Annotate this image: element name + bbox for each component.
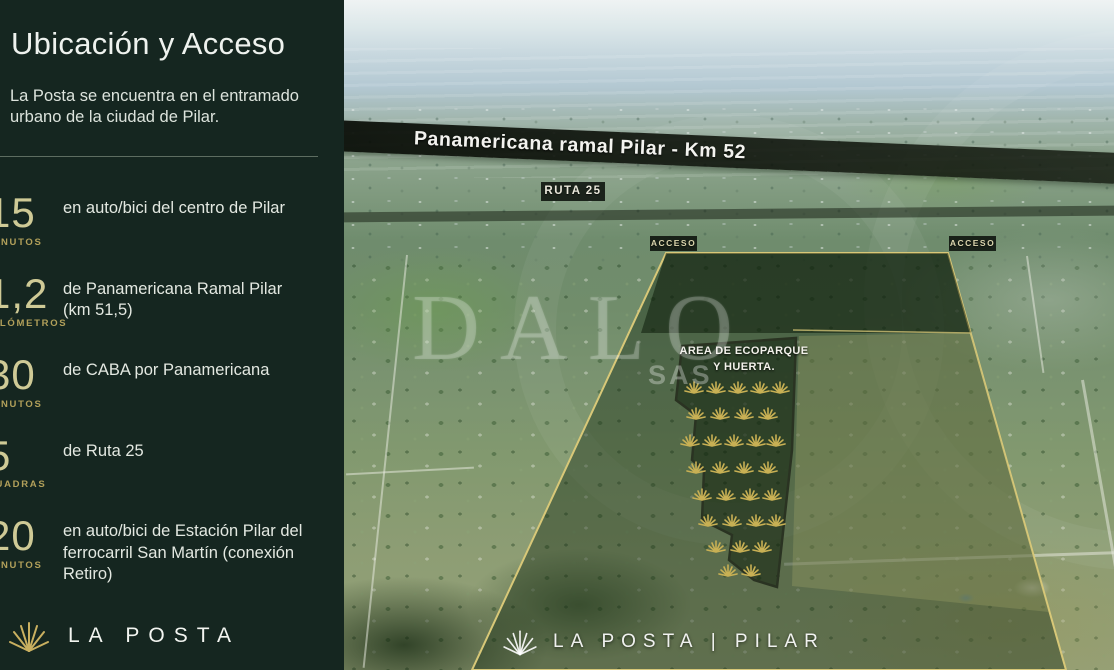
divider	[0, 156, 318, 157]
agave-icon	[8, 618, 50, 654]
location-access-slide: Ubicación y Acceso La Posta se encuentra…	[0, 0, 1114, 670]
stat-unit: CUADRAS	[0, 479, 63, 490]
stat-row-minutes-estacion: 20 MINUTOS en auto/bici de Estación Pila…	[0, 516, 344, 585]
sidebar-subtitle: La Posta se encuentra en el entramado ur…	[10, 86, 316, 129]
stat-value-block: 5 CUADRAS	[0, 436, 63, 491]
stat-description: de Panamericana Ramal Pilar (km 51,5)	[63, 274, 311, 322]
aerial-map: Panamericana ramal Pilar - Km 52 RUTA 25…	[344, 0, 1114, 670]
stat-description: en auto/bici del centro de Pilar	[63, 193, 285, 219]
stat-unit: KILÓMETROS	[0, 318, 63, 329]
stat-description: de CABA por Panamericana	[63, 355, 269, 381]
laposta-wordmark: LA POSTA	[68, 624, 240, 648]
stats-list: 15 MINUTOS en auto/bici del centro de Pi…	[0, 193, 344, 586]
map-footer-logo: LA POSTA | PILAR	[502, 627, 825, 657]
sidebar: Ubicación y Acceso La Posta se encuentra…	[0, 0, 344, 670]
stat-value: 1,2	[0, 274, 63, 314]
stat-value-block: 20 MINUTOS	[0, 516, 63, 571]
stat-unit: MINUTOS	[0, 399, 63, 410]
stat-description: en auto/bici de Estación Pilar del ferro…	[63, 516, 311, 585]
stat-unit: MINUTOS	[0, 560, 63, 571]
footer-brand-text: LA POSTA | PILAR	[553, 631, 825, 653]
stat-description: de Ruta 25	[63, 436, 144, 462]
stat-unit: MINUTOS	[0, 237, 63, 248]
stat-value-block: 15 MINUTOS	[0, 193, 63, 248]
stat-value: 20	[0, 516, 63, 556]
stat-value: 30	[0, 355, 63, 395]
page-title: Ubicación y Acceso	[11, 26, 324, 62]
laposta-logo: LA POSTA	[8, 618, 240, 654]
stat-value-block: 30 MINUTOS	[0, 355, 63, 410]
watermark-subtext: SAS	[648, 360, 713, 391]
stat-value: 5	[0, 436, 63, 476]
stat-row-minutes-caba: 30 MINUTOS de CABA por Panamericana	[0, 355, 344, 410]
stat-value-block: 1,2 KILÓMETROS	[0, 274, 63, 329]
agave-icon-white	[502, 627, 538, 657]
stat-value: 15	[0, 193, 63, 233]
stat-row-cuadras-ruta25: 5 CUADRAS de Ruta 25	[0, 436, 344, 491]
stat-row-km-panamericana: 1,2 KILÓMETROS de Panamericana Ramal Pil…	[0, 274, 344, 329]
stat-row-minutes-pilar: 15 MINUTOS en auto/bici del centro de Pi…	[0, 193, 344, 248]
